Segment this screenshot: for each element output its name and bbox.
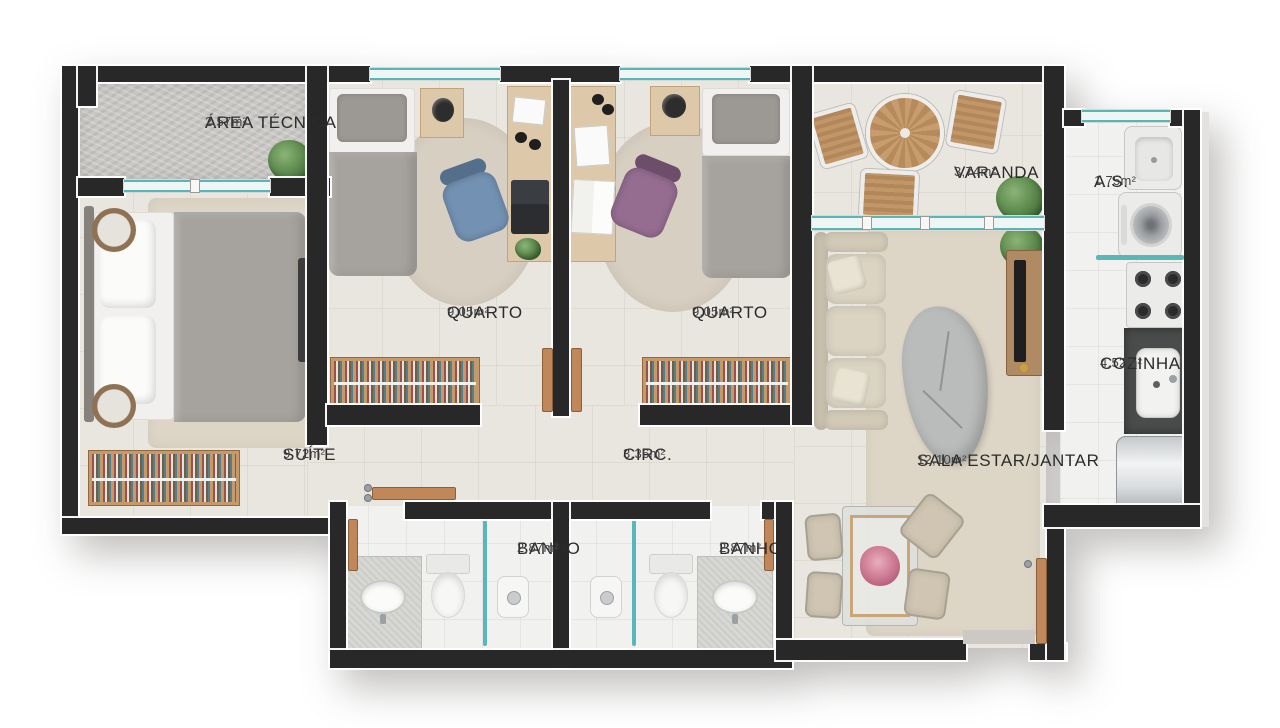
banho2-faucet — [732, 614, 738, 624]
wall — [553, 502, 569, 668]
varanda-chair — [859, 169, 920, 222]
window-connector — [862, 216, 872, 230]
wall — [776, 640, 966, 660]
quarto2-notebook — [574, 125, 611, 167]
wall — [327, 405, 480, 425]
suite-duvet — [174, 212, 306, 422]
quarto2-rack — [642, 357, 792, 407]
sofa-cushion — [826, 306, 886, 356]
stove-burner — [1165, 303, 1181, 319]
floor-plan: ÁREA TÉCNICA 2,57m² QUARTO 9,05m² QUARTO… — [0, 0, 1280, 728]
washer-drum — [1130, 203, 1172, 247]
quarto1-lamp — [432, 98, 454, 122]
area-tecnica-plant — [268, 140, 312, 182]
quarto2-pillow — [712, 94, 780, 144]
room-area: 2,57m² — [205, 114, 247, 129]
quarto1-headphones — [515, 132, 527, 143]
floor-plan-canvas: ÁREA TÉCNICA 2,57m² QUARTO 9,05m² QUARTO… — [0, 0, 1280, 728]
banho2-toilet-tank — [649, 554, 693, 574]
suite-nightstand — [92, 384, 136, 428]
suite-headboard — [84, 206, 94, 422]
sofa-pillow — [831, 367, 871, 407]
dining-chair — [804, 571, 843, 619]
wall — [1047, 527, 1064, 660]
banho2-toilet-bowl — [654, 572, 688, 618]
window-connector — [984, 216, 994, 230]
dining-chair — [804, 513, 844, 562]
quarto1-rack — [330, 357, 480, 407]
washer-controls — [1121, 205, 1127, 245]
sofa-armrest — [824, 410, 888, 430]
stove — [1126, 262, 1190, 328]
room-area: 9,05m² — [692, 304, 734, 319]
room-area: 2,87m² — [719, 540, 761, 555]
wall — [78, 66, 96, 106]
wall — [792, 66, 812, 425]
room-area: 9,72m² — [283, 446, 325, 461]
banho1-shower-glass — [483, 520, 487, 646]
door-hinge — [364, 484, 372, 492]
door-suite — [372, 487, 456, 500]
wall — [62, 66, 78, 534]
door-hinge — [364, 494, 372, 502]
entry-threshold — [963, 630, 1035, 644]
as-cozinha-divider — [1096, 255, 1184, 260]
sink-drain — [1153, 381, 1160, 388]
room-area: 3,36m² — [623, 446, 665, 461]
room-area: 1,75m² — [1094, 173, 1136, 188]
quarto1-notebook — [512, 96, 547, 125]
banho2-shower-glass — [632, 520, 636, 646]
banho1-sink — [360, 580, 406, 614]
banho1-faucet — [380, 614, 386, 624]
slab-edge — [1200, 112, 1209, 527]
wall — [1044, 66, 1064, 430]
window-quarto1 — [370, 68, 500, 80]
laundry-drain — [1151, 157, 1157, 163]
faucet — [1169, 375, 1177, 383]
room-area: 4,52m² — [1100, 355, 1142, 370]
banho2-sink — [712, 580, 758, 614]
wall — [330, 650, 792, 668]
wall — [553, 80, 569, 416]
room-area: 3,74m² — [954, 164, 996, 179]
quarto1-laptop — [511, 180, 549, 234]
wall — [330, 502, 346, 668]
door-quarto2 — [571, 348, 582, 412]
banho2-shower — [590, 576, 622, 618]
window-connector — [190, 179, 200, 193]
quarto2-headphones — [602, 104, 614, 115]
door-banho1 — [348, 519, 358, 571]
quarto1-headphones — [529, 139, 541, 150]
quarto1-desk-plant — [515, 238, 541, 260]
wall — [1064, 110, 1084, 126]
window-connector — [920, 216, 930, 230]
door-hinge — [1024, 560, 1032, 568]
banho1-shower — [497, 576, 529, 618]
banho1-toilet-bowl — [431, 572, 465, 618]
varanda-table — [866, 94, 944, 172]
stove-burner — [1165, 271, 1181, 287]
sofa — [814, 232, 888, 430]
dining-flowers — [860, 546, 900, 586]
varanda-chair — [946, 90, 1007, 154]
window-as — [1082, 110, 1170, 122]
window-quarto2 — [620, 68, 750, 80]
stove-burner — [1135, 303, 1151, 319]
suite-rack — [88, 450, 240, 506]
quarto1-pillow — [337, 94, 407, 142]
door-quarto1 — [542, 348, 553, 412]
banho1-toilet-tank — [426, 554, 470, 574]
wall — [78, 178, 124, 196]
wall — [62, 518, 330, 534]
washing-machine — [1118, 192, 1182, 258]
wall — [1184, 110, 1200, 527]
quarto2-lamp — [662, 94, 686, 118]
stove-burner — [1135, 271, 1151, 287]
tv-stand-knob — [1020, 364, 1028, 372]
wall — [1044, 505, 1200, 527]
sofa-armrest — [824, 232, 888, 252]
tv — [1014, 260, 1026, 362]
suite-nightstand — [92, 208, 136, 252]
door-entry — [1036, 558, 1047, 644]
room-area: 9,05m² — [447, 304, 489, 319]
quarto1-duvet — [329, 152, 417, 276]
quarto2-headphones — [592, 94, 604, 105]
room-area: 2,87m² — [517, 540, 559, 555]
wall — [640, 405, 792, 425]
quarto2-duvet — [702, 156, 792, 278]
fridge — [1116, 436, 1190, 514]
dining-chair — [903, 567, 951, 620]
room-area: 12,10m² — [917, 452, 967, 467]
